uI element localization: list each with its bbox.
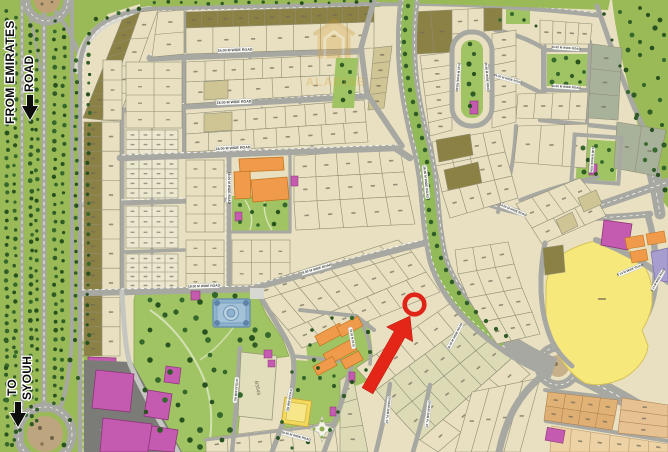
svg-text:REAL ESTATE: REAL ESTATE: [307, 94, 365, 100]
svg-text:TO: TO: [5, 379, 19, 396]
svg-text:SYOUH: SYOUH: [20, 356, 34, 400]
svg-text:FROM EMIRATES: FROM EMIRATES: [3, 20, 17, 124]
svg-text:ROAD: ROAD: [22, 55, 36, 92]
svg-text:18.00 M WIDE ROAD: 18.00 M WIDE ROAD: [227, 172, 231, 205]
svg-text:ALADIAB: ALADIAB: [306, 75, 367, 89]
